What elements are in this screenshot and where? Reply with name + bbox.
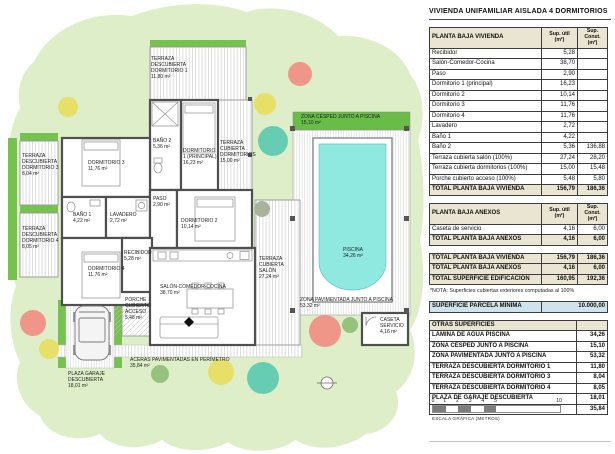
label-terraza-dormitorio3: TERRAZA DESCUBIERTA DORMITORIO 3 8,04 m² [22, 153, 59, 177]
label-paso: PASO 2,90 m² [153, 196, 177, 208]
table-row: TERRAZA DESCUBIERTA DORMITORIO 3 8,04 [430, 373, 608, 384]
table-resumen: TOTAL PLANTA BAJA VIVIENDA 156,79 186,36… [429, 253, 608, 286]
row-const [578, 132, 608, 143]
row-value: 11,80 [577, 362, 608, 373]
row-label: TERRAZA DESCUBIERTA DORMITORIO 1 [430, 362, 577, 373]
scale-tick: 3 [469, 398, 472, 404]
scale-ticks: 0 1 2 3 4 5 10 [432, 398, 572, 405]
col-header-const: Sup. Const. (m²) [578, 28, 608, 49]
table-parcela-minima: SUPERFICIE PARCELA MÍNIMA 10.000,00 [429, 301, 608, 313]
row-const: 5,80 [578, 174, 608, 185]
label-lavadero: LAVADERO 2,72 m² [110, 212, 150, 224]
table-row: ZONA PAVIMENTADA JUNTO A PISCINA 53,32 [430, 352, 608, 363]
scale-bar [432, 405, 561, 413]
table-row: Caseta de servicio 4,16 6,00 [430, 224, 608, 235]
scale-caption: ESCALA GRÁFICA (METROS) [432, 416, 572, 421]
table-row: Dormitorio 2 10,14 [430, 90, 608, 101]
label-terraza-dormitorio1: TERRAZA DESCUBIERTA DORMITORIO 1 11,80 m… [151, 56, 221, 80]
scale-tick: 4 [481, 398, 484, 404]
table-row: Lavadero 2,72 [430, 122, 608, 133]
row-value: 34,26 [577, 331, 608, 342]
row-label: Dormitorio 2 [430, 90, 542, 101]
summary-label: TOTAL PLANTA BAJA ANEXOS [430, 264, 542, 275]
label-caseta: CASETA SERVICIO 4,16 m² [380, 317, 408, 335]
row-util: 4,16 [542, 224, 578, 235]
row-label: Porche cubierto acceso (100%) [430, 174, 542, 185]
table-row: ZONA CÉSPED JUNTO A PISCINA 15,10 [430, 341, 608, 352]
parcela-label: SUPERFICIE PARCELA MÍNIMA [430, 302, 542, 313]
table-planta-baja-vivienda: PLANTA BAJA VIVIENDA Sup. útil (m²) Sup.… [429, 27, 608, 196]
row-label: TERRAZA DESCUBIERTA DORMITORIO 3 [430, 373, 577, 384]
label-dormitorio3: DORMITORIO 3 11,76 m² [88, 160, 146, 172]
label-zona-pavimentada: ZONA PAVIMENTADA JUNTO A PISCINA 53,32 m… [300, 297, 408, 309]
label-dormitorio4: DORMITORIO 4 11,76 m² [88, 266, 146, 278]
row-label: TERRAZA DESCUBIERTA DORMITORIO 4 [430, 383, 577, 394]
table-header: OTRAS SUPERFICIES [430, 320, 577, 331]
parcela-value: 10.000,00 [542, 302, 608, 313]
sheet-border-line [429, 441, 611, 442]
table-row: Dormitorio 3 11,76 [430, 101, 608, 112]
row-value: 8,05 [577, 383, 608, 394]
summary-util: 4,16 [542, 264, 578, 275]
table-row: LÁMINA DE AGUA PISCINA 34,26 [430, 331, 608, 342]
row-label: Paso [430, 69, 542, 80]
table-row: Dormitorio 4 11,76 [430, 111, 608, 122]
label-bano2: BAÑO 2 5,36 m² [153, 138, 181, 150]
row-const [578, 101, 608, 112]
row-util: 11,76 [542, 111, 578, 122]
row-const [578, 122, 608, 133]
summary-util: 160,95 [542, 274, 578, 285]
row-label: ZONA CÉSPED JUNTO A PISCINA [430, 341, 577, 352]
row-util: 5,36 [542, 143, 578, 154]
total-label: TOTAL PLANTA BAJA VIVIENDA [430, 185, 542, 196]
table-row: Terraza cubierta salón (100%) 27,24 28,2… [430, 153, 608, 164]
row-util: 5,28 [542, 48, 578, 59]
row-label: ZONA PAVIMENTADA JUNTO A PISCINA [430, 352, 577, 363]
label-piscina: PISCINA 34,26 m² [335, 247, 371, 259]
table-row: Baño 1 4,22 [430, 132, 608, 143]
row-label: Lavadero [430, 122, 542, 133]
pool-water [319, 144, 386, 290]
row-util: 4,22 [542, 132, 578, 143]
table-row: Terraza cubierta dormitorios (100%) 15,0… [430, 164, 608, 175]
row-const: 6,00 [578, 224, 608, 235]
scale-tick: 1 [443, 398, 446, 404]
sheet-title: VIVIENDA UNIFAMILIAR AISLADA 4 DORMITORI… [429, 8, 611, 20]
table-row: TERRAZA DESCUBIERTA DORMITORIO 4 8,05 [430, 383, 608, 394]
label-salon: SALÓN-COMEDOR-COCINA 38,70 m² [160, 284, 242, 296]
table-row: Recibidor 5,28 [430, 48, 608, 59]
row-util: 11,76 [542, 101, 578, 112]
row-util: 27,24 [542, 153, 578, 164]
col-header-const: Sup. Const. (m²) [578, 203, 608, 224]
row-label: Baño 2 [430, 143, 542, 154]
data-panel: VIVIENDA UNIFAMILIAR AISLADA 4 DORMITORI… [429, 8, 611, 422]
row-const [578, 90, 608, 101]
row-value: 15,10 [577, 341, 608, 352]
row-label: Terraza cubierta salón (100%) [430, 153, 542, 164]
row-util: 10,14 [542, 90, 578, 101]
scale-tick: 0 [432, 398, 435, 404]
drawing-sheet: TERRAZA DESCUBIERTA DORMITORIO 1 11,80 m… [0, 0, 615, 454]
row-const [578, 48, 608, 59]
total-label: TOTAL PLANTA BAJA ANEXOS [430, 235, 542, 246]
total-const: 186,36 [578, 185, 608, 196]
row-value: 8,04 [577, 373, 608, 384]
summary-const: 6,00 [578, 264, 608, 275]
row-label: Terraza cubierta dormitorios (100%) [430, 164, 542, 175]
col-header-util: Sup. útil (m²) [542, 203, 578, 224]
table-row: Dormitorio 1 (principal) 16,23 [430, 80, 608, 91]
label-recibidor: RECIBIDOR 5,28 m² [124, 250, 154, 262]
row-const [578, 59, 608, 70]
label-zona-cesped: ZONA CÉSPED JUNTO A PISCINA 15,10 m² [301, 114, 409, 126]
row-util: 5,48 [542, 174, 578, 185]
label-porche: PORCHE CUBIERTO ACCESO 5,48 m² [125, 297, 153, 321]
total-row: TOTAL PLANTA BAJA ANEXOS 4,16 6,00 [430, 235, 608, 246]
summary-row: TOTAL PLANTA BAJA VIVIENDA 156,79 186,36 [430, 253, 608, 264]
label-bano1: BAÑO 1 4,22 m² [73, 212, 105, 224]
summary-label: TOTAL PLANTA BAJA VIVIENDA [430, 253, 542, 264]
row-const: 136,88 [578, 143, 608, 154]
row-label: Caseta de servicio [430, 224, 542, 235]
table-row: TERRAZA DESCUBIERTA DORMITORIO 1 11,80 [430, 362, 608, 373]
summary-label: TOTAL SUPERFICIE EDIFICACIÓN [430, 274, 542, 285]
row-const: 15,48 [578, 164, 608, 175]
row-const [578, 80, 608, 91]
row-util: 15,00 [542, 164, 578, 175]
label-dormitorio2: DORMITORIO 2 10,14 m² [181, 218, 239, 230]
total-row: TOTAL PLANTA BAJA VIVIENDA 156,79 186,36 [430, 185, 608, 196]
summary-const: 192,36 [578, 274, 608, 285]
row-const [578, 111, 608, 122]
label-terraza-cubierta-dormitorios: TERRAZA CUBIERTA DORMITORIOS 15,00 m² [220, 140, 253, 164]
scale-tick: 10 [556, 398, 562, 404]
site-plan: TERRAZA DESCUBIERTA DORMITORIO 1 11,80 m… [0, 0, 430, 454]
row-label: Salón-Comedor-Cocina [430, 59, 542, 70]
car-icon [73, 306, 111, 360]
row-util: 38,70 [542, 59, 578, 70]
summary-const: 186,36 [578, 253, 608, 264]
scale-tick: 2 [456, 398, 459, 404]
footnote: *NOTA: Superficies cubiertas exteriores … [430, 288, 611, 294]
table-header-value [577, 320, 608, 331]
row-value: 53,32 [577, 352, 608, 363]
row-const [578, 69, 608, 80]
row-util: 2,72 [542, 122, 578, 133]
table-row: Porche cubierto acceso (100%) 5,48 5,80 [430, 174, 608, 185]
row-util: 2,90 [542, 69, 578, 80]
summary-util: 156,79 [542, 253, 578, 264]
label-dormitorio1: DORMITORIO 1 (PRINCIPAL) 16,23 m² [183, 148, 223, 166]
label-garaje: PLAZA GARAJE DESCUBIERTA 18,01 m² [68, 371, 120, 389]
row-util: 16,23 [542, 80, 578, 91]
row-label: Recibidor [430, 48, 542, 59]
table-row: Salón-Comedor-Cocina 38,70 [430, 59, 608, 70]
scale-tick: 5 [494, 398, 497, 404]
row-label: Dormitorio 3 [430, 101, 542, 112]
row-const: 28,20 [578, 153, 608, 164]
table-header: PLANTA BAJA ANEXOS [430, 203, 542, 224]
row-value: 18,01 [577, 394, 608, 405]
col-header-util: Sup. útil (m²) [542, 28, 578, 49]
row-label: Dormitorio 1 (principal) [430, 80, 542, 91]
pool [313, 138, 392, 302]
total-util: 4,16 [542, 235, 578, 246]
table-row: Baño 2 5,36 136,88 [430, 143, 608, 154]
row-label: Dormitorio 4 [430, 111, 542, 122]
row-label: Baño 1 [430, 132, 542, 143]
total-util: 156,79 [542, 185, 578, 196]
row-label: LÁMINA DE AGUA PISCINA [430, 331, 577, 342]
label-terraza-cubierta-salon: TERRAZA CUBIERTA SALÓN 27,24 m² [259, 256, 299, 280]
table-planta-baja-anexos: PLANTA BAJA ANEXOS Sup. útil (m²) Sup. C… [429, 203, 608, 246]
total-const: 6,00 [578, 235, 608, 246]
row-value: 35,84 [577, 404, 608, 415]
label-terraza-dormitorio4: TERRAZA DESCUBIERTA DORMITORIO 4 8,05 m² [22, 226, 59, 250]
graphic-scale: 0 1 2 3 4 5 10 ESCALA GRÁFICA (METROS) [432, 398, 572, 421]
table-header: PLANTA BAJA VIVIENDA [430, 28, 542, 49]
table-row: Paso 2,90 [430, 69, 608, 80]
summary-row: TOTAL PLANTA BAJA ANEXOS 4,16 6,00 [430, 264, 608, 275]
label-aceras: ACERAS PAVIMENTADAS EN PERÍMETRO 35,84 m… [130, 357, 260, 369]
summary-row: TOTAL SUPERFICIE EDIFICACIÓN 160,95 192,… [430, 274, 608, 285]
